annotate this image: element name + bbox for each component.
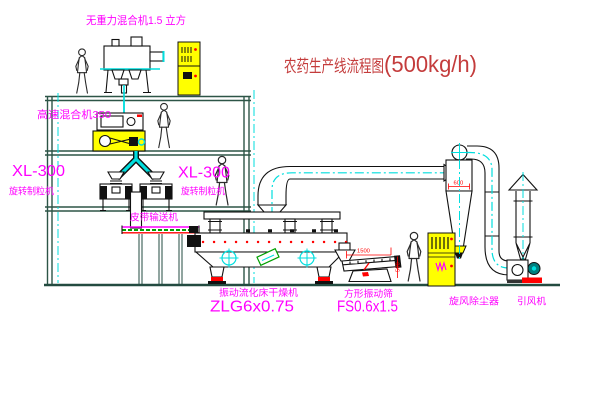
- person-figure-2: [158, 103, 170, 147]
- fan-base: [522, 278, 542, 284]
- control-cabinet-top: [178, 42, 200, 95]
- indicator-dot: [450, 265, 453, 268]
- label-sieve-model: FS0.6x1.5: [337, 299, 398, 316]
- cad-flow-diagram: 600 1500 500: [0, 0, 600, 403]
- label-dryer-model: ZLG6x0.75: [210, 299, 294, 316]
- gravity-mixer: [100, 37, 164, 116]
- sieve-length-dimension: 1500: [357, 249, 370, 255]
- diagram-canvas: 600 1500 500: [0, 0, 600, 403]
- rotary-granulator-center: [140, 172, 172, 211]
- cyclone-dimension: 600: [454, 181, 464, 187]
- title-chinese: 农药生产线流程图: [284, 57, 384, 76]
- fluid-bed-dryer: [187, 212, 347, 284]
- label-belt-conveyor: 皮带输送机: [130, 212, 178, 224]
- person-figure-4: [407, 232, 421, 281]
- indicator-dot: [194, 48, 197, 51]
- dryer-foot-right: [315, 267, 333, 284]
- vibrating-sieve: 1500 500: [335, 243, 402, 282]
- label-high-speed-mixer: 高速混合机350: [37, 108, 111, 121]
- indicator-dot: [194, 75, 197, 78]
- induced-draft-fan: [507, 260, 542, 283]
- label-granulator-left-name: 旋转制粒机: [9, 186, 54, 198]
- indicator-dot: [450, 238, 453, 241]
- label-cyclone: 旋风除尘器: [449, 296, 500, 308]
- control-cabinet-bottom: [428, 233, 455, 286]
- label-dryer-name: 振动流化床干燥机: [219, 287, 299, 299]
- label-granulator-center-name: 旋转制粒机: [181, 186, 225, 198]
- person-figure-1: [76, 49, 88, 93]
- label-gravity-mixer: 无重力混合机1.5 立方: [86, 13, 186, 27]
- title-rate: (500kg/h): [384, 51, 477, 77]
- dryer-exhaust-duct: [258, 165, 457, 217]
- label-granulator-center-model: XL-300: [178, 165, 230, 182]
- page-title: 农药生产线流程图(500kg/h): [284, 51, 477, 77]
- belt-conveyor: [122, 226, 199, 285]
- exhaust-stack: [509, 172, 537, 268]
- sieve-height-dimension: 500: [396, 262, 402, 272]
- dryer-foot-left: [208, 267, 226, 284]
- label-fan: 引风机: [517, 296, 546, 308]
- label-granulator-left-model: XL-300: [12, 163, 65, 180]
- rotary-granulator-left: [100, 172, 132, 211]
